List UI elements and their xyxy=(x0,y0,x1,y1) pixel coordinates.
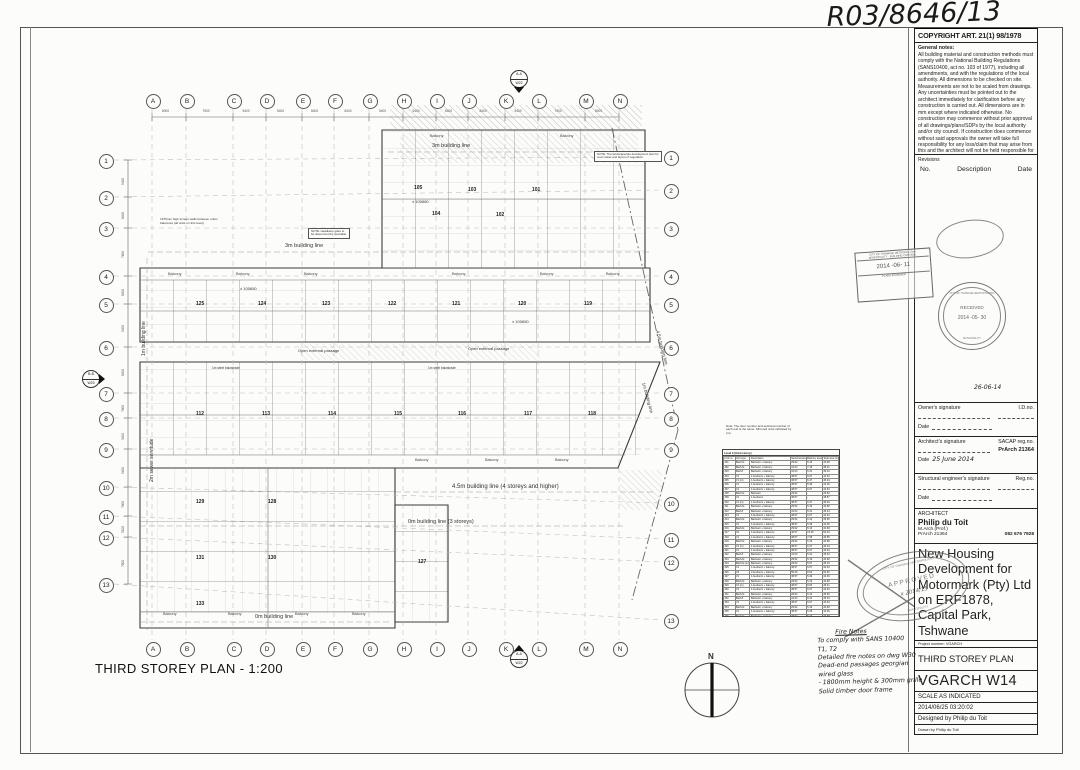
balcony-label: Balcony xyxy=(452,272,466,276)
unit-number: 101 xyxy=(532,188,540,194)
architect-heading: ARCHITECT xyxy=(918,511,1034,517)
left-dimension-value: 7600 xyxy=(122,404,126,411)
received-round-stamp: CITY OF TSHWANE METROPOLITAN RECEIVED 20… xyxy=(938,282,1006,350)
units-mid-band xyxy=(140,362,640,455)
schedule-grid: Unit no.Unit typeDescriptionSectional ar… xyxy=(723,456,839,617)
grid-letter-top-B: B xyxy=(180,94,195,109)
copyright-bar: COPYRIGHT ART. 21(1) 98/1978 xyxy=(914,28,1038,43)
schedule-cell: 34.68 xyxy=(822,614,838,617)
top-dimension-value: 8400 xyxy=(345,110,352,114)
unit-number: 112 xyxy=(196,412,204,418)
grid-letter-top-K: K xyxy=(499,94,514,109)
grid-letter-bottom-A: A xyxy=(146,642,161,657)
unit-number: 113 xyxy=(262,412,270,418)
section-sheet-label: W23 xyxy=(83,380,99,388)
grid-row-left-2: 2 xyxy=(99,191,114,206)
unit-number: 104 xyxy=(432,212,440,218)
balcony-label: Balcony xyxy=(228,612,242,616)
unit-number: 124 xyxy=(258,302,266,308)
top-dimension-value: 8400 xyxy=(445,110,452,114)
grid-row-left-8: 8 xyxy=(99,412,114,427)
general-notes: General notes: All building material and… xyxy=(914,43,1038,155)
plan-label: 2m sewer servitude xyxy=(150,439,156,482)
grid-row-right-7: 7 xyxy=(664,387,679,402)
section-marker-label: B-B xyxy=(83,371,99,380)
grid-letter-bottom-F: F xyxy=(328,642,343,657)
plan-label: 3m building line xyxy=(432,143,470,149)
unit-number: 117 xyxy=(524,412,532,418)
vegetation-hatch-court xyxy=(620,470,662,510)
signature-date: 26-06-14 xyxy=(974,385,1001,392)
balcony-label: Balcony xyxy=(540,272,554,276)
grid-letter-top-J: J xyxy=(462,94,477,109)
grid-letter-bottom-D: D xyxy=(260,642,275,657)
received-ring-bottom: MUNICIPALITY xyxy=(939,337,1005,340)
section-sheet-label: W22 xyxy=(511,80,527,88)
owner-signature-block: Owner's signature I.D.no. Date xyxy=(914,403,1038,437)
grid-row-left-7: 7 xyxy=(99,387,114,402)
top-dimension-value: 5400 xyxy=(413,110,420,114)
plan-label: 0m building line (3 storeys) xyxy=(408,519,474,525)
grid-letter-bottom-H: H xyxy=(397,642,412,657)
left-dimension-value: 7600 xyxy=(122,500,126,507)
general-notes-text: All building material and construction m… xyxy=(918,52,1034,161)
unit-number: 128 xyxy=(268,500,276,506)
grid-letter-top-N: N xyxy=(613,94,628,109)
north-label: N xyxy=(708,652,714,661)
project-number: Project number: VGARCH xyxy=(914,641,1038,648)
architect-phone: 082 676 7928 xyxy=(1005,532,1034,537)
balcony-label: Balcony xyxy=(304,272,318,276)
sheet-title: THIRD STOREY PLAN xyxy=(914,648,1038,671)
received-word: RECEIVED xyxy=(939,305,1005,310)
unit-number: 131 xyxy=(196,556,204,562)
top-dimension-value: 7000 xyxy=(555,110,562,114)
grid-letter-top-C: C xyxy=(227,94,242,109)
grid-letter-bottom-L: L xyxy=(532,642,547,657)
grid-letter-bottom-G: G xyxy=(363,642,378,657)
grid-row-left-10: 10 xyxy=(99,481,114,496)
grid-row-left-1: 1 xyxy=(99,154,114,169)
section-marker-label: A-A xyxy=(511,71,527,80)
section-marker-top: A-AW22 xyxy=(510,70,528,88)
schedule-cell: Bachelor + balcony xyxy=(750,614,790,617)
sacap-reg-no: PrArch 21364 xyxy=(998,447,1034,453)
top-dimension-value: 5400 xyxy=(243,110,250,114)
grid-letter-top-H: H xyxy=(397,94,412,109)
sacap-reg-label: SACAP reg.no. xyxy=(998,439,1034,445)
engineer-signature-block: Structural engineer's signature Reg.no. … xyxy=(914,474,1038,509)
left-dimension-value: 8400 xyxy=(122,369,126,376)
left-dimension-value: 5100 xyxy=(122,525,126,532)
title-block: COPYRIGHT ART. 21(1) 98/1978 General not… xyxy=(914,28,1038,735)
plan-label: Open external passage xyxy=(468,347,509,352)
plan-label: Note: The door number and sectional numb… xyxy=(726,425,792,435)
grid-letter-bottom-E: E xyxy=(296,642,311,657)
section-marker-pointer xyxy=(514,87,524,93)
unit-number: 102 xyxy=(496,213,504,219)
grid-letter-bottom-C: C xyxy=(227,642,242,657)
left-dimension-value: 7600 xyxy=(122,251,126,258)
unit-number: 129 xyxy=(196,500,204,506)
grid-row-right-12: 12 xyxy=(664,556,679,571)
units-left-wing xyxy=(140,468,395,612)
plan-label: 1675mm high screen walls between units/ … xyxy=(160,218,218,225)
top-dimension-value: 8400 xyxy=(595,110,602,114)
drawn-by: Drawn by Philip du Toit xyxy=(914,725,1038,735)
schedule-header: Total area (m²) xyxy=(822,457,838,461)
top-dimension-value: 8400 xyxy=(480,110,487,114)
grid-row-right-5: 5 xyxy=(664,298,679,313)
plan-label: 1m steel balustrade xyxy=(212,367,240,371)
grid-letter-top-L: L xyxy=(532,94,547,109)
schedule-header: Sectional area (m²) xyxy=(790,457,806,461)
left-dimension-value: 9400 xyxy=(122,467,126,474)
plan-label: 1m building line xyxy=(142,321,148,356)
balcony-label: Balcony xyxy=(555,458,569,462)
schedule-row: 336Bach/stBachelor + balcony29.525.1634.… xyxy=(724,614,839,617)
left-dimension-value: 3400 xyxy=(122,432,126,439)
drawing-sheet: R03/8646/13 xyxy=(0,0,1080,770)
grid-row-left-3: 3 xyxy=(99,222,114,237)
grid-row-right-9: 9 xyxy=(664,443,679,458)
grid-letter-top-F: F xyxy=(328,94,343,109)
unit-number: 130 xyxy=(268,556,276,562)
plan-label: 0m building line xyxy=(255,614,293,620)
unit-number: 116 xyxy=(458,412,466,418)
top-dimension-value: 8000 xyxy=(162,110,169,114)
unit-number: 120 xyxy=(518,302,526,308)
unit-number: 122 xyxy=(388,302,396,308)
unit-number: 133 xyxy=(196,602,204,608)
municipality-rect-stamp: CITY OF TSHWANE METROPOLITAN MUNICIPALIT… xyxy=(854,247,933,302)
left-dimension-value: 8400 xyxy=(122,211,126,218)
top-dimension-value: 7500 xyxy=(203,110,210,114)
unit-number: 121 xyxy=(452,302,460,308)
schedule-cell: 336 xyxy=(724,614,736,617)
left-dimension-value: 5400 xyxy=(122,324,126,331)
grid-letter-bottom-B: B xyxy=(180,642,195,657)
grid-letter-bottom-I: I xyxy=(430,642,445,657)
section-marker-pointer xyxy=(99,374,105,384)
balcony-label: Balcony xyxy=(415,458,429,462)
unit-number: 103 xyxy=(468,188,476,194)
balcony-label: Balcony xyxy=(606,272,620,276)
unit-number: 118 xyxy=(588,412,596,418)
schedule-cell: Bach/st (m) xyxy=(735,562,750,566)
north-arrow xyxy=(685,663,739,717)
balcony-label: Balcony xyxy=(430,134,444,138)
revisions-label: Revisions xyxy=(918,157,1034,163)
grid-row-left-12: 12 xyxy=(99,531,114,546)
grid-letter-bottom-J: J xyxy=(462,642,477,657)
architect-name: Philip du Toit xyxy=(918,518,1034,527)
grid-row-left-9: 9 xyxy=(99,443,114,458)
architect-info-block: ARCHITECT Philip du Toit M.Arch.(Prof.) … xyxy=(914,509,1038,544)
grid-row-left-13: 13 xyxy=(99,578,114,593)
balcony-label: Balcony xyxy=(236,272,250,276)
balcony-label: Balcony xyxy=(168,272,182,276)
revisions-col-description: Description xyxy=(957,166,991,173)
plan-label: ± 100650 xyxy=(512,320,529,325)
grid-letter-top-A: A xyxy=(146,94,161,109)
balcony-label: Balcony xyxy=(485,458,499,462)
revisions-col-no: No. xyxy=(920,166,931,173)
rect-stamp-date: 2014 -06- 11 xyxy=(857,261,929,272)
datetime: 2014/06/25 03:20:02 xyxy=(914,703,1038,714)
top-dimension-value: 5400 xyxy=(277,110,284,114)
left-dimension-value: 7600 xyxy=(122,559,126,566)
grid-row-right-11: 11 xyxy=(664,533,679,548)
plan-label: NOTE: The landscape/site development pla… xyxy=(594,151,662,162)
units-top-band xyxy=(140,280,650,342)
unit-number: 114 xyxy=(328,412,336,418)
grid-row-left-11: 11 xyxy=(99,510,114,525)
architect-reg: PrArch 21364 xyxy=(918,532,947,537)
grid-letter-top-E: E xyxy=(296,94,311,109)
balcony-label: Balcony xyxy=(163,612,177,616)
plan-label: ± 100660 xyxy=(412,200,429,205)
unit-number: 105 xyxy=(414,186,422,192)
grid-row-left-5: 5 xyxy=(99,298,114,313)
schedule-cell: Bach/st xyxy=(735,614,750,617)
grid-letter-bottom-M: M xyxy=(579,642,594,657)
grid-row-right-3: 3 xyxy=(664,222,679,237)
top-dimension-value: 5400 xyxy=(379,110,386,114)
grid-row-left-4: 4 xyxy=(99,270,114,285)
grid-row-right-2: 2 xyxy=(664,184,679,199)
unit-number: 119 xyxy=(584,302,592,308)
fire-notes-handwritten: Fire NotesTo comply with SANS 10400T1, T… xyxy=(817,627,923,697)
rect-stamp-line3: PLANS EXAMINER xyxy=(858,270,930,279)
section-marker-bottom: A-AW22 xyxy=(510,650,528,668)
grid-row-left-6: 6 xyxy=(99,341,114,356)
plan-label: Open external passage xyxy=(298,349,339,354)
owner-date-label: Date xyxy=(918,424,929,430)
grid-letter-top-M: M xyxy=(579,94,594,109)
architect-date-label: Date xyxy=(918,457,929,463)
unit-number: 127 xyxy=(418,560,426,566)
plan-label: ± 100650 xyxy=(240,287,257,292)
revisions-block: Revisions No. Description Date xyxy=(914,155,1038,403)
top-dimension-value: 5400 xyxy=(515,110,522,114)
revisions-col-date: Date xyxy=(1018,166,1032,173)
scale-note: SCALE AS INDICATED xyxy=(914,692,1038,703)
plan-label: 3m building line xyxy=(285,243,323,249)
balcony-label: Balcony xyxy=(560,134,574,138)
section-marker-pointer xyxy=(514,645,524,651)
top-dimension-value: 8400 xyxy=(311,110,318,114)
left-dimension-value: 8400 xyxy=(122,289,126,296)
plan-label: 1m steel balustrade xyxy=(428,367,456,371)
plan-label: NOTE: Headlamp glare to be determined by… xyxy=(308,228,350,239)
unit-number: 125 xyxy=(196,302,204,308)
plan-label: 4.5m building line (4 storeys and higher… xyxy=(452,484,559,491)
unit-number: 115 xyxy=(394,412,402,418)
grid-letter-top-G: G xyxy=(363,94,378,109)
grid-row-right-13: 13 xyxy=(664,614,679,629)
architect-signature-block: Architect's signature SACAP reg.no. PrAr… xyxy=(914,437,1038,474)
grid-letter-top-D: D xyxy=(260,94,275,109)
grid-letter-bottom-N: N xyxy=(613,642,628,657)
unit-number: 123 xyxy=(322,302,330,308)
received-date: 2014 -05- 30 xyxy=(939,315,1005,321)
architect-date-value: 25 June 2014 xyxy=(932,456,974,463)
grid-row-right-10: 10 xyxy=(664,497,679,512)
general-notes-title: General notes: xyxy=(918,45,954,51)
plan-title: THIRD STOREY PLAN - 1:200 xyxy=(95,662,283,677)
received-ring-top: CITY OF TSHWANE METROPOLITAN xyxy=(939,292,1005,295)
grid-row-right-8: 8 xyxy=(664,412,679,427)
unit-schedule-table: Level 3 (third storey) Unit no.Unit type… xyxy=(722,449,840,617)
section-sheet-label: W22 xyxy=(511,660,527,668)
grid-letter-top-I: I xyxy=(430,94,445,109)
left-dimension-value: 9400 xyxy=(122,177,126,184)
schedule-header: Balcony area (m²) xyxy=(806,457,822,461)
schedule-cell: 5.16 xyxy=(806,614,822,617)
balcony-label: Balcony xyxy=(295,612,309,616)
grid-row-right-1: 1 xyxy=(664,151,679,166)
drawing-code: VGARCH W14 xyxy=(914,671,1038,692)
schedule-cell: 29.52 xyxy=(790,614,806,617)
designed-by: Designed by Philip du Toit xyxy=(914,714,1038,725)
section-marker-left: B-BW23 xyxy=(82,370,100,388)
balcony-label: Balcony xyxy=(352,612,366,616)
grid-row-right-4: 4 xyxy=(664,270,679,285)
engineer-date-label: Date xyxy=(918,495,929,501)
section-marker-label: A-A xyxy=(511,651,527,660)
